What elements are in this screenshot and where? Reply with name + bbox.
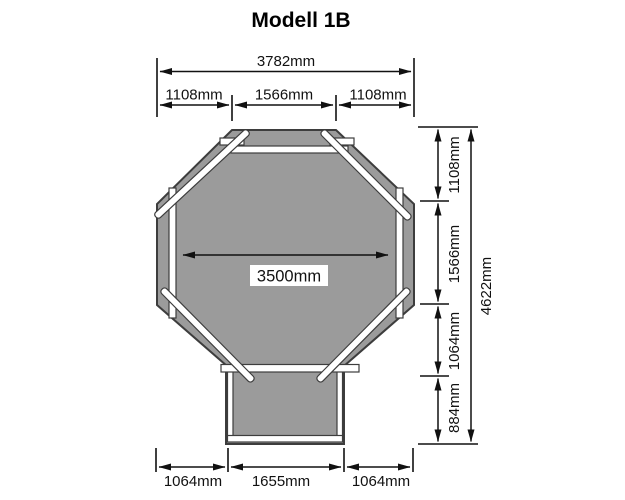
top-total-label: 3782mm (257, 53, 315, 70)
octagon-wall (157, 130, 414, 366)
right-total-label: 4622mm (478, 257, 495, 315)
inner-width-label: 3500mm (257, 268, 321, 286)
right-seg4-label: 884mm (446, 383, 463, 433)
bottom-seg3-label: 1064mm (352, 473, 410, 490)
extension-left-plank (228, 367, 234, 442)
right-seg3-label: 1064mm (446, 312, 463, 370)
right-seg1-label: 1108mm (446, 136, 463, 193)
right-seg2-label: 1566mm (446, 225, 463, 283)
extension-bottom-plank (228, 436, 343, 443)
extension-right-plank (337, 367, 343, 442)
bottom-seg1-label: 1064mm (164, 473, 222, 490)
diagram-root: Modell 1B 3500mm 3782mm (0, 0, 625, 500)
bottom-seg2-label: 1655mm (252, 473, 310, 490)
top-seg2-label: 1566mm (255, 87, 313, 104)
dimension-bottom: 1064mm 1655mm 1064mm (156, 448, 413, 490)
top-seg3-label: 1108mm (349, 87, 406, 104)
top-seg1-label: 1108mm (165, 87, 222, 104)
diagram-title: Modell 1B (251, 9, 350, 32)
pool-body (153, 129, 414, 444)
dimension-right: 1108mm 1566mm 1064mm 884mm 4622mm (418, 127, 495, 444)
dimension-top: 3782mm 1108mm 1566mm 1108mm (157, 53, 414, 121)
pool-plan-canvas: Modell 1B 3500mm 3782mm (0, 0, 625, 500)
top-wall-plank (231, 146, 348, 153)
